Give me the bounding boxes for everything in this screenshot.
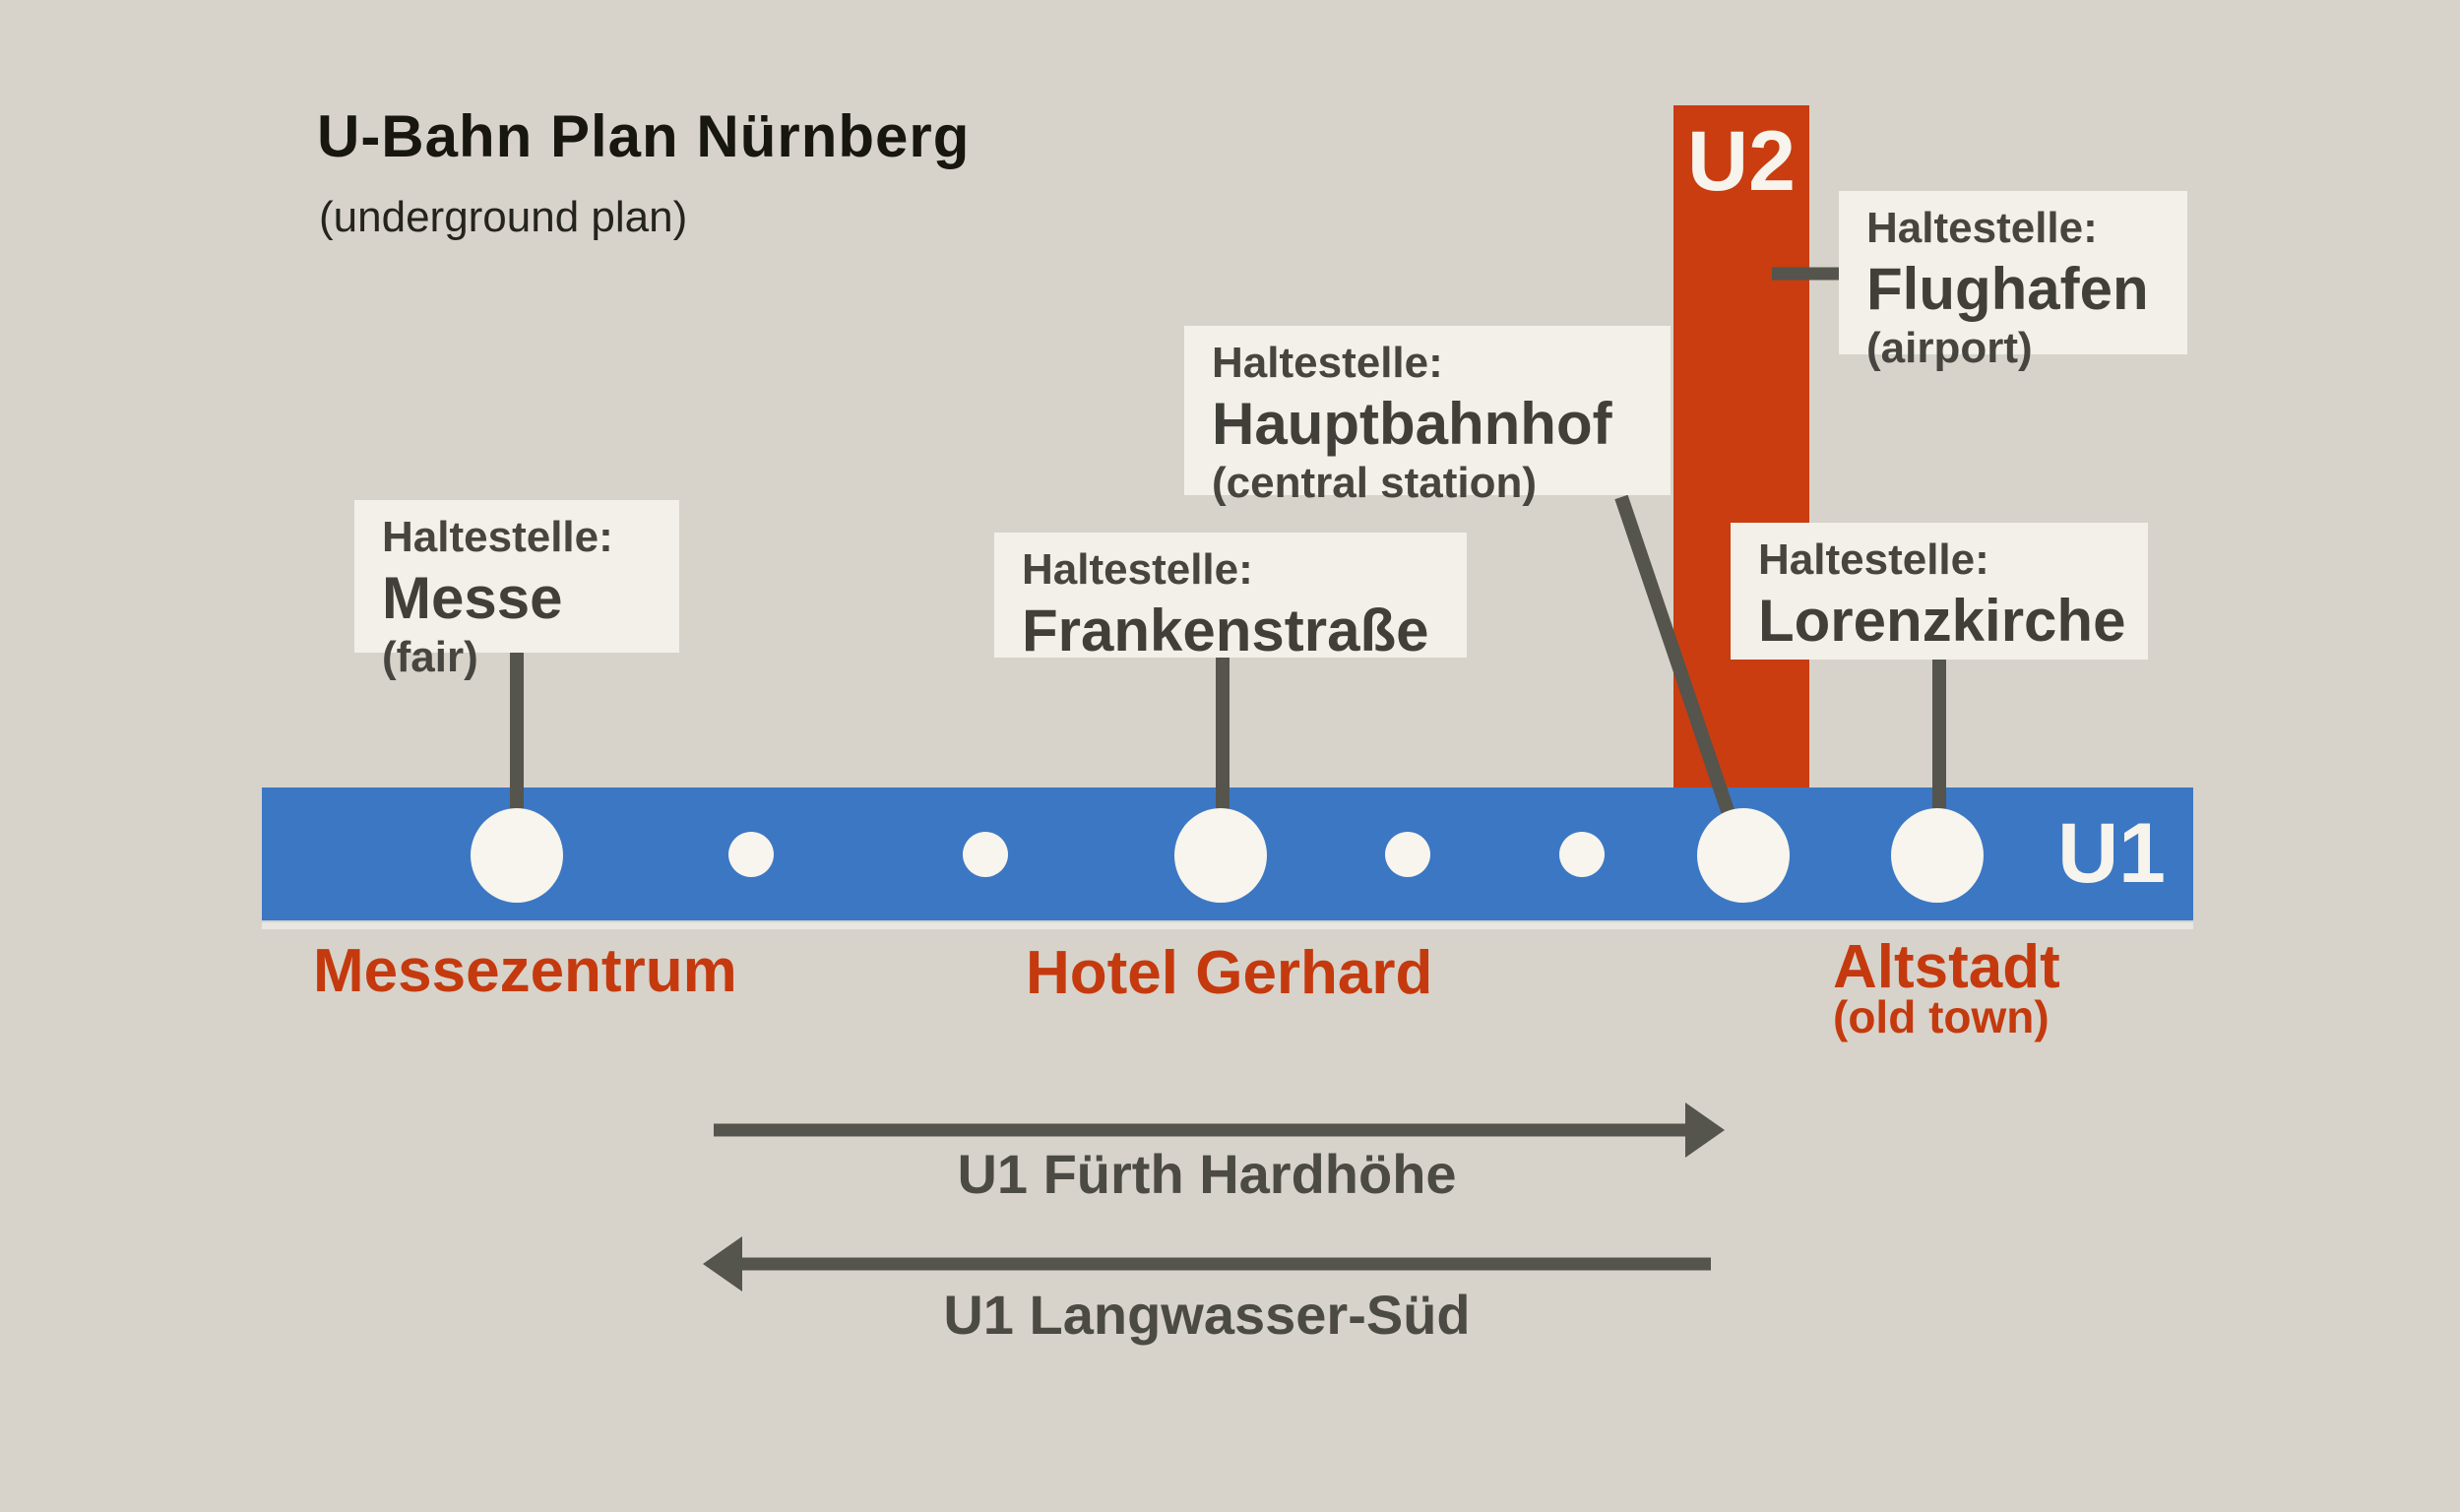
- stop-name: Flughafen: [1866, 256, 2187, 322]
- stop-prefix: Haltestelle:: [382, 510, 679, 565]
- callout-frankenstrasse: Haltestelle: Frankenstraße: [994, 533, 1467, 658]
- station-dot: [1559, 832, 1605, 877]
- callout-flughafen: Haltestelle: Flughafen (airport): [1839, 191, 2187, 354]
- stop-name: Messe: [382, 565, 679, 631]
- surface-label-hotel-gerhard: Hotel Gerhard: [1026, 943, 1432, 1004]
- station-dot: [1385, 832, 1430, 877]
- station-dot: [963, 832, 1008, 877]
- hauptbahnhof-connector-line: [1621, 497, 1738, 843]
- ubahn-plan-diagram: U-Bahn Plan Nürnberg (underground plan) …: [0, 0, 2460, 1512]
- station-dot: [471, 808, 563, 903]
- station-dot: [1891, 808, 1984, 903]
- direction-label-langwasser: U1 Langwasser-Süd: [665, 1283, 1748, 1347]
- callout-hauptbahnhof: Haltestelle: Hauptbahnhof (central stati…: [1184, 326, 1671, 495]
- callout-lorenzkirche: Haltestelle: Lorenzkirche: [1731, 523, 2148, 660]
- stop-note: (fair): [382, 632, 679, 683]
- surface-label-altstadt-note: (old town): [1833, 994, 2050, 1039]
- direction-label-fuerth: U1 Fürth Hardhöhe: [665, 1142, 1748, 1206]
- stop-name: Hauptbahnhof: [1212, 391, 1671, 457]
- station-dot: [1697, 808, 1790, 903]
- stop-note: (central station): [1212, 458, 1671, 509]
- stop-name: Lorenzkirche: [1758, 588, 2148, 654]
- station-dot: [728, 832, 774, 877]
- stop-prefix: Haltestelle:: [1022, 542, 1467, 598]
- callout-messe: Haltestelle: Messe (fair): [354, 500, 679, 653]
- surface-label-messezentrum: Messezentrum: [313, 941, 737, 1002]
- stop-note: (airport): [1866, 323, 2187, 374]
- surface-label-altstadt: Altstadt: [1833, 937, 2060, 998]
- stop-prefix: Haltestelle:: [1212, 336, 1671, 391]
- stop-prefix: Haltestelle:: [1866, 201, 2187, 256]
- station-dot: [1174, 808, 1267, 903]
- stop-name: Frankenstraße: [1022, 598, 1467, 663]
- stop-prefix: Haltestelle:: [1758, 533, 2148, 588]
